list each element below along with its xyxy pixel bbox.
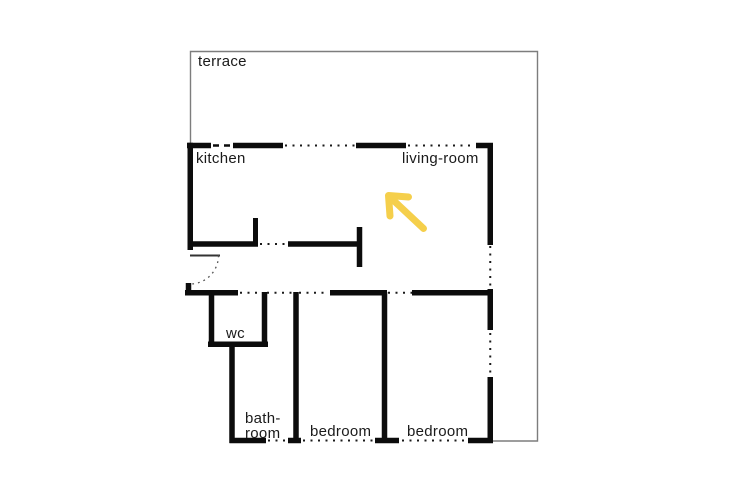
hall-upper-wall <box>260 227 360 267</box>
direction-arrow-icon <box>389 196 424 229</box>
room-label-wc: wc <box>225 325 245 342</box>
door-swing-arc <box>190 256 219 285</box>
room-label-terrace: terrace <box>198 53 247 70</box>
room-label-bedroom-2: bedroom <box>407 423 468 440</box>
room-label-living-room: living-room <box>402 150 479 167</box>
arrow-shaft <box>392 199 424 229</box>
room-label-bathroom-line2: room <box>245 425 280 442</box>
entrance-door <box>189 256 221 294</box>
room-label-bedroom-1: bedroom <box>310 423 371 440</box>
floor-plan: terrace kitchen living-room wc bath- roo… <box>0 0 750 500</box>
room-label-kitchen: kitchen <box>196 150 246 167</box>
floor-plan-canvas: terrace kitchen living-room wc bath- roo… <box>0 0 750 500</box>
